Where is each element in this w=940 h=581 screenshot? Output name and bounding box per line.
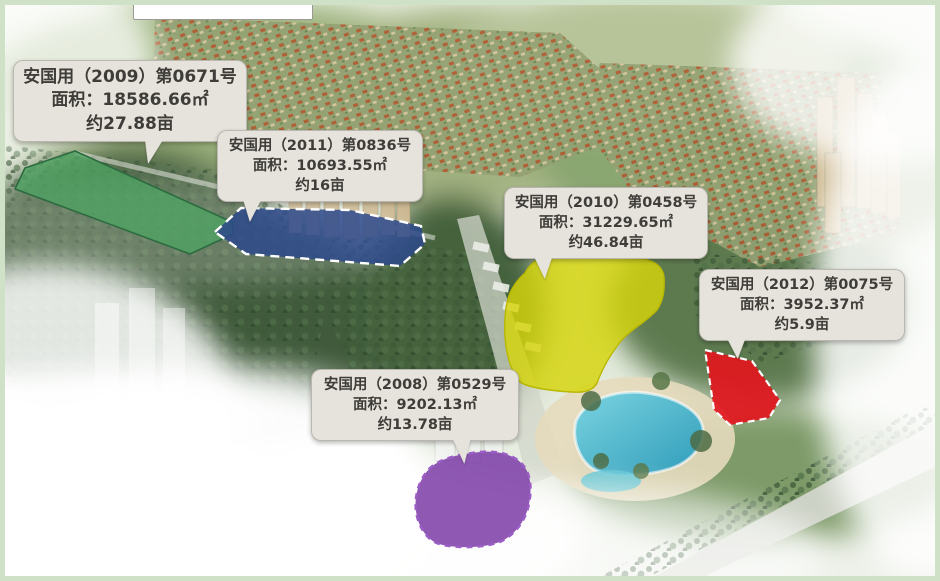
parcel-title: 安国用（2010）第0458号 xyxy=(511,193,701,213)
parcel-mu: 约5.9亩 xyxy=(706,315,898,335)
parcel-area: 面积：31229.65㎡ xyxy=(511,213,701,233)
parcel-area: 面积：18586.66㎡ xyxy=(20,89,240,112)
parcel-callout-2008: 安国用（2008）第0529号 面积：9202.13㎡ 约13.78亩 xyxy=(311,369,519,441)
callout-pointer xyxy=(727,339,746,359)
parcel-title: 安国用（2011）第0836号 xyxy=(224,136,416,156)
parcel-title: 安国用（2012）第0075号 xyxy=(706,275,898,295)
parcel-area: 面积：10693.55㎡ xyxy=(224,156,416,176)
parcel-area: 面积：9202.13㎡ xyxy=(318,395,512,415)
parcel-area: 面积：3952.37㎡ xyxy=(706,295,898,315)
callout-pointer xyxy=(534,257,554,279)
parcel-callout-2009: 安国用（2009）第0671号 面积：18586.66㎡ 约27.88亩 xyxy=(13,60,247,142)
top-cropped-textbox xyxy=(133,1,313,20)
parcel-callout-2011: 安国用（2011）第0836号 面积：10693.55㎡ 约16亩 xyxy=(217,130,423,202)
parcel-callout-2010: 安国用（2010）第0458号 面积：31229.65㎡ 约46.84亩 xyxy=(504,187,708,259)
parcel-callout-2012: 安国用（2012）第0075号 面积：3952.37㎡ 约5.9亩 xyxy=(699,269,905,341)
parcel-mu: 约16亩 xyxy=(224,176,416,196)
parcel-highlight-2008 xyxy=(416,452,531,548)
masterplan-slide: 安国用（2009）第0671号 面积：18586.66㎡ 约27.88亩 安国用… xyxy=(0,0,940,581)
parcel-title: 安国用（2009）第0671号 xyxy=(20,66,240,89)
parcel-mu: 约27.88亩 xyxy=(20,113,240,136)
callout-pointer xyxy=(453,439,474,464)
parcel-mu: 约13.78亩 xyxy=(318,415,512,435)
callout-pointer xyxy=(241,200,261,222)
parcel-title: 安国用（2008）第0529号 xyxy=(318,375,512,395)
parcel-mu: 约46.84亩 xyxy=(511,233,701,253)
